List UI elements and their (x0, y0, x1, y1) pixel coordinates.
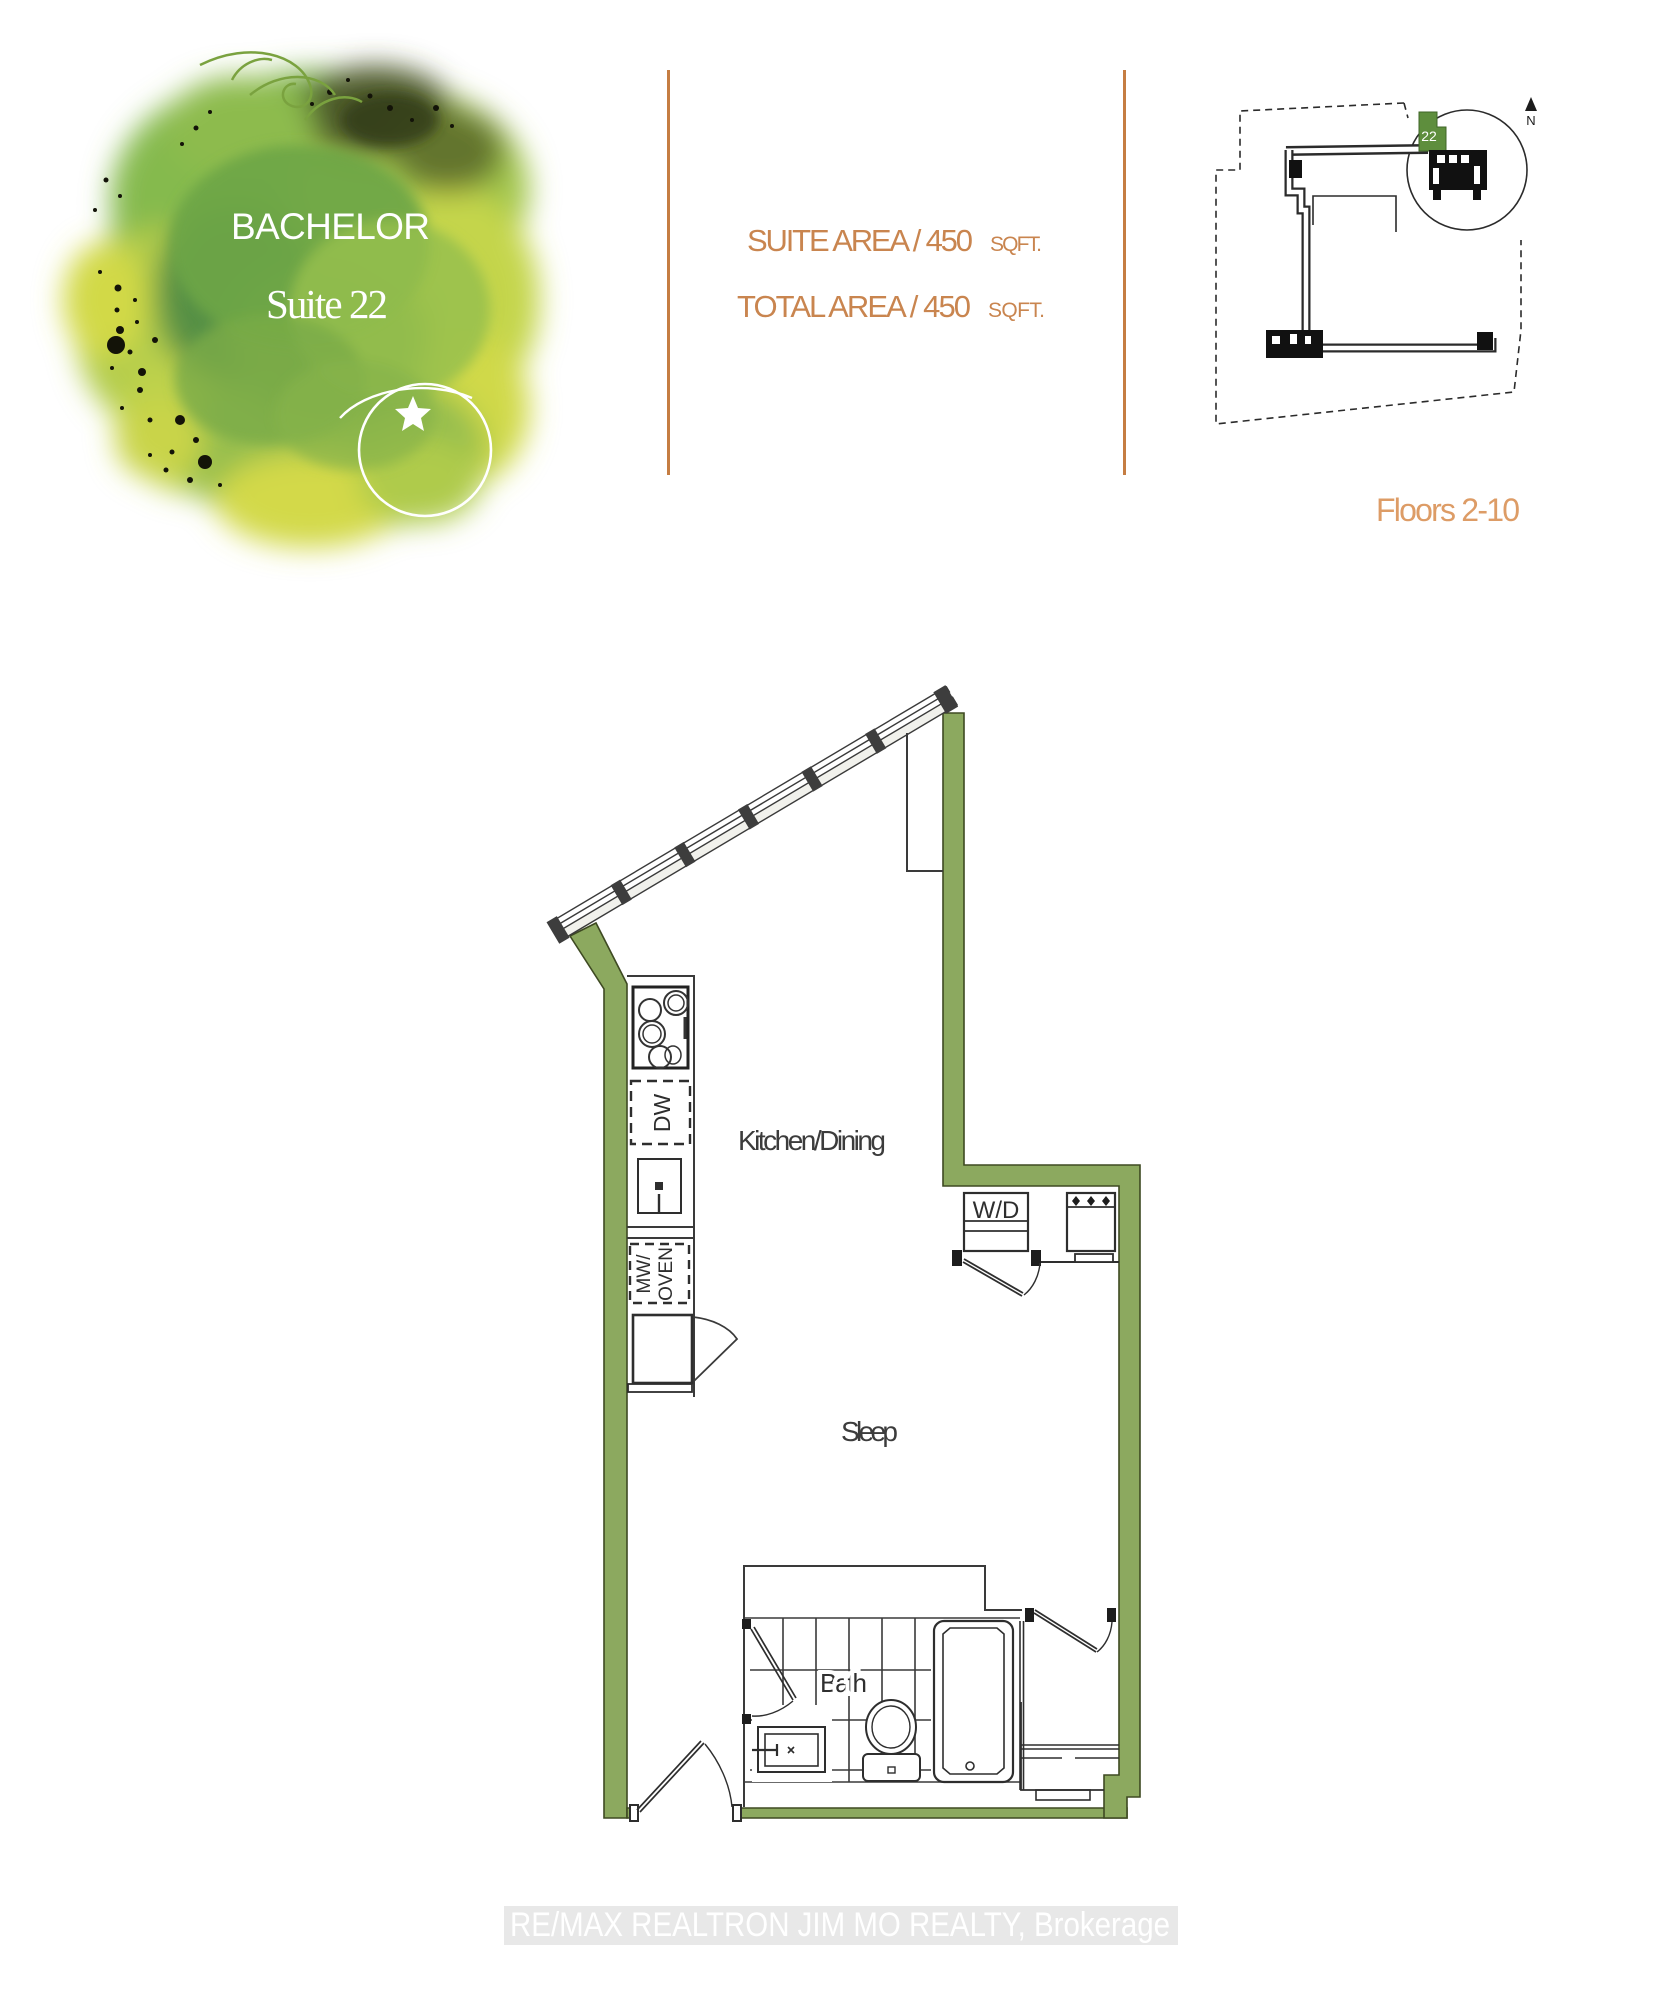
svg-text:RE/MAX REALTRON JIM MO REALTY,: RE/MAX REALTRON JIM MO REALTY, Brokerage (510, 1906, 1170, 1944)
svg-text:Sleep: Sleep (841, 1416, 898, 1447)
svg-text:MW/: MW/ (634, 1254, 655, 1294)
svg-text:Kitchen/Dining: Kitchen/Dining (738, 1125, 886, 1156)
svg-text:OVEN: OVEN (656, 1247, 677, 1301)
svg-text:W/D: W/D (973, 1197, 1020, 1224)
svg-text:SQFT.: SQFT. (990, 233, 1042, 256)
svg-text:SQFT.: SQFT. (988, 299, 1045, 322)
svg-text:BACHELOR: BACHELOR (231, 206, 433, 247)
svg-text:Floors 2-10: Floors 2-10 (1376, 492, 1520, 528)
svg-text:Bath: Bath (820, 1668, 867, 1698)
svg-text:SUITE AREA / 450: SUITE AREA / 450 (747, 223, 973, 258)
svg-text:TOTAL AREA / 450: TOTAL AREA / 450 (737, 289, 971, 324)
svg-text:22: 22 (1421, 128, 1437, 144)
svg-text:Suite 22: Suite 22 (266, 281, 388, 327)
svg-text:N: N (1526, 113, 1535, 128)
svg-text:DW: DW (649, 1094, 675, 1133)
